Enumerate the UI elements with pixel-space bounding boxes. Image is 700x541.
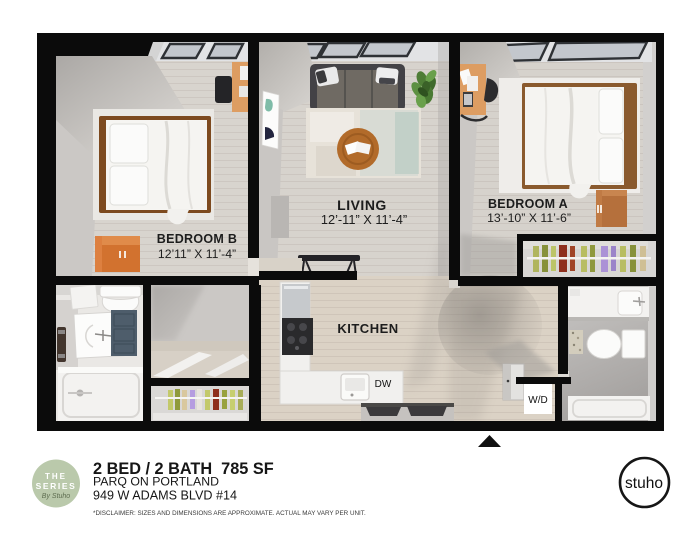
svg-text:*DISCLAIMER: SIZES AND DIMENSI: *DISCLAIMER: SIZES AND DIMENSIONS ARE AP… <box>93 510 366 517</box>
svg-text:BEDROOM A: BEDROOM A <box>488 197 568 211</box>
svg-text:KITCHEN: KITCHEN <box>337 321 398 336</box>
svg-text:stuho: stuho <box>625 475 663 492</box>
svg-text:BEDROOM B: BEDROOM B <box>157 232 237 246</box>
svg-text:SERIES: SERIES <box>36 481 77 491</box>
svg-text:PARQ ON PORTLAND: PARQ ON PORTLAND <box>93 475 219 489</box>
svg-text:12’11” X 11’-4”: 12’11” X 11’-4” <box>158 247 236 261</box>
svg-text:DW: DW <box>375 379 392 390</box>
svg-text:949 W ADAMS BLVD #14: 949 W ADAMS BLVD #14 <box>93 489 237 503</box>
svg-text:By Stuho: By Stuho <box>42 493 71 500</box>
svg-text:13’-10” X 11’-6”: 13’-10” X 11’-6” <box>487 211 571 225</box>
svg-text:LIVING: LIVING <box>337 197 387 213</box>
svg-text:THE: THE <box>45 472 67 481</box>
svg-text:W/D: W/D <box>528 395 547 406</box>
svg-text:12’-11” X 11’-4”: 12’-11” X 11’-4” <box>321 212 407 227</box>
